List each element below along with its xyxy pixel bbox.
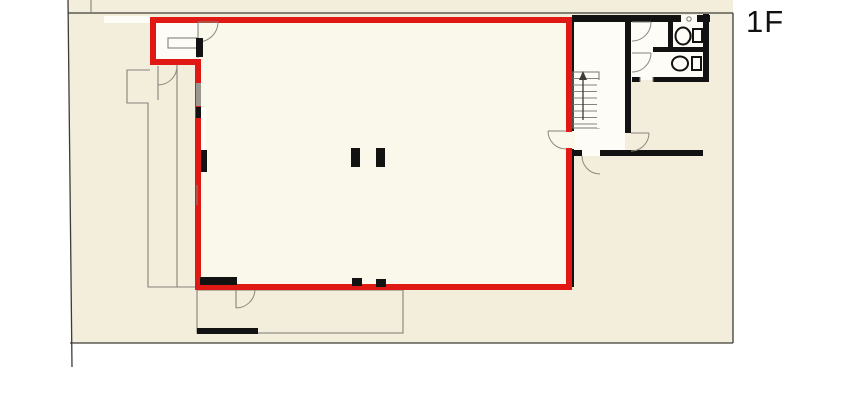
entrance-door-frame [196,38,203,57]
toilet-bowl-lower [672,57,688,71]
entrance-canopy [104,16,151,23]
wc-bottom-wall [653,77,709,82]
stair-handrail [597,80,601,128]
stair-south-wall-left [572,150,582,156]
floor-label: 1F [746,4,784,40]
wc-partition-vertical [668,16,673,49]
stair-door-leaf [582,150,600,156]
column-marker-right [376,148,385,167]
floor-plan-drawing [0,0,841,400]
wc-right-wall [703,14,709,82]
main-hall [153,20,569,287]
toilet-lower [672,57,701,71]
stair-south-wall-right [600,150,703,156]
wash-basin [681,15,697,23]
wc-bottom-wall-stub [632,77,640,82]
toilet-tank-lower [692,57,701,70]
west-pilaster [201,107,206,152]
south-corner-bar [200,277,237,285]
wc-partition-horizontal [653,47,708,52]
toilet-upper [676,28,703,45]
column-marker-left [351,148,360,167]
east-door-gap [564,132,575,148]
floor-plan-page: 1F [0,0,841,400]
entrance-room [155,22,198,60]
toilet-tank-upper [693,29,702,42]
stairwell-right-wall [625,17,631,133]
west-window-mark [196,83,201,106]
terrace-step-bar [197,328,258,334]
